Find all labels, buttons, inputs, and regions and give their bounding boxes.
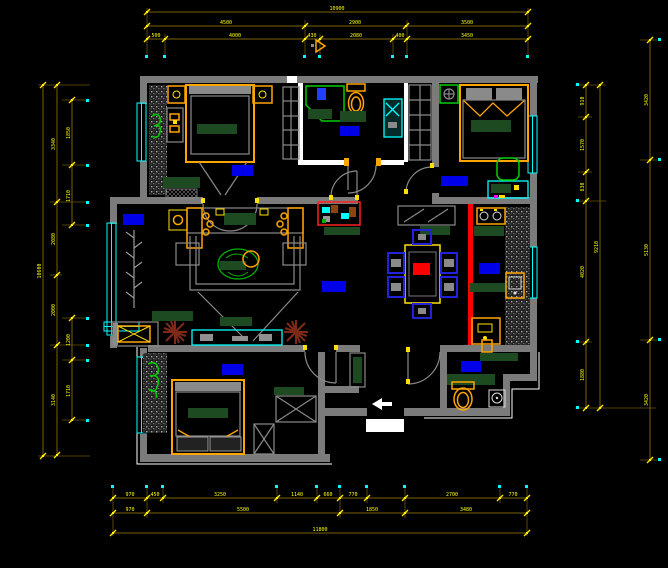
planter-icon — [152, 311, 193, 321]
section-marker-icon — [316, 40, 325, 52]
dim-label: 1850 — [66, 127, 72, 139]
dim-label: 9210 — [594, 241, 600, 253]
dim-label: 3340 — [51, 138, 57, 150]
window-living-icon — [107, 223, 116, 335]
dim-label: 11800 — [312, 527, 327, 533]
tv-media-unit-icon — [318, 202, 360, 235]
dimension-chain-bottom: 970 450 3250 1140 660 770 2700 770 970 5… — [110, 485, 530, 536]
dim-label: 3450 — [461, 33, 473, 39]
dining-table-icon — [405, 245, 440, 303]
dim-label: 4020 — [580, 266, 586, 278]
balcony-cabinet-icon — [112, 322, 158, 346]
dim-label: 400 — [395, 33, 404, 39]
room-label-bedroom3 — [222, 364, 243, 375]
walls — [110, 76, 539, 464]
dim-label: 770 — [348, 492, 357, 498]
dim-label: 3420 — [644, 94, 650, 106]
bench-icon — [163, 177, 200, 188]
vanity-icon — [384, 99, 402, 137]
nightstand-icon — [253, 86, 272, 103]
potted-plant-icon — [163, 320, 187, 344]
dim-label: 3250 — [214, 492, 226, 498]
wardrobe-hatch-icon — [143, 353, 167, 433]
dim-label: 4000 — [229, 33, 241, 39]
hall-closet-grid-icon — [409, 85, 431, 160]
dim-label: 1140 — [291, 492, 303, 498]
dim-label: 5130 — [644, 244, 650, 256]
dim-label: 4500 — [220, 20, 232, 26]
window-bedroom1-icon — [137, 103, 146, 161]
dim-label: 430 — [307, 33, 316, 39]
double-bed-icon — [186, 85, 254, 162]
dim-label: 1710 — [66, 190, 72, 202]
nightstand-icon — [168, 86, 185, 103]
dim-label: 1880 — [580, 369, 586, 381]
dim-label: 2080 — [350, 33, 362, 39]
dim-label: 1570 — [580, 139, 586, 151]
counter-hatch-icon — [505, 207, 530, 345]
stove-icon — [477, 208, 505, 224]
dim-label: 2900 — [349, 20, 361, 26]
dim-label: 5500 — [237, 507, 249, 513]
entry-mat — [366, 419, 404, 432]
hall-cabinet-icon — [350, 353, 365, 387]
washing-machine-icon — [489, 390, 505, 407]
tv-stand-icon — [192, 330, 282, 345]
potted-plant-icon — [284, 320, 308, 344]
room-label-bedroom1 — [232, 165, 253, 176]
toilet-icon — [347, 84, 365, 114]
dim-label: 2700 — [446, 492, 458, 498]
room-label-bedroom2 — [441, 176, 468, 186]
dim-label: 10900 — [329, 6, 344, 12]
dimension-chain-left: 10600 3340 2080 2000 3140 1850 1710 1200… — [37, 82, 90, 459]
dim-label: 3140 — [51, 394, 57, 406]
living-room — [123, 208, 308, 345]
dresser-icon — [167, 108, 183, 142]
room-label-dining — [322, 281, 346, 292]
dim-label: 10600 — [37, 263, 43, 278]
showerhead-icon — [317, 88, 326, 100]
bedroom1 — [149, 85, 299, 199]
dimension-chain-top: 10900 4500 2900 3500 500 4000 430 2080 4… — [144, 6, 531, 58]
bedroom3 — [143, 353, 316, 454]
dim-label: 500 — [151, 33, 160, 39]
sliding-wardrobe-icon — [254, 396, 316, 454]
dim-label: 2080 — [51, 233, 57, 245]
plant-rack-icon — [126, 230, 142, 308]
room-label-bathroom2 — [461, 361, 481, 372]
dim-label: 970 — [125, 492, 134, 498]
double-bed-icon — [460, 85, 528, 161]
dim-label: 450 — [150, 492, 159, 498]
soundbar-icon — [220, 317, 252, 326]
dim-label: 1200 — [66, 334, 72, 346]
double-bed-icon — [172, 380, 244, 454]
table-icon — [166, 189, 197, 199]
toilet-icon — [452, 382, 474, 410]
coffee-table-plant-icon — [218, 249, 259, 279]
room-label-bathroom1 — [340, 126, 359, 136]
dimension-chain-right: 910 1570 830 4020 1880 9210 3420 5130 34… — [575, 37, 661, 463]
dim-label: 2000 — [51, 304, 57, 316]
cad-floor-plan-canvas: 10900 4500 2900 3500 500 4000 430 2080 4… — [0, 0, 668, 568]
dim-label: 830 — [580, 182, 586, 191]
dim-label: 3480 — [460, 507, 472, 513]
room-label-kitchen — [479, 263, 500, 274]
bedroom2 — [440, 85, 528, 198]
dim-label: 3420 — [644, 394, 650, 406]
dim-label: 3500 — [461, 20, 473, 26]
room-label-living — [123, 214, 144, 225]
window-bedroom2-icon — [528, 116, 537, 173]
dim-label: 660 — [323, 492, 332, 498]
dim-label: 1850 — [366, 507, 378, 513]
ceiling-fan-icon — [440, 85, 458, 103]
dim-label: 770 — [508, 492, 517, 498]
kitchen — [470, 207, 530, 345]
balcony — [112, 311, 193, 346]
dim-label: 970 — [125, 507, 134, 513]
entry-arrow-icon — [372, 398, 392, 410]
dim-label: 910 — [580, 96, 586, 105]
closet-grid-icon — [283, 87, 299, 159]
dim-label: 1710 — [66, 385, 72, 397]
bathroom1 — [306, 84, 402, 137]
